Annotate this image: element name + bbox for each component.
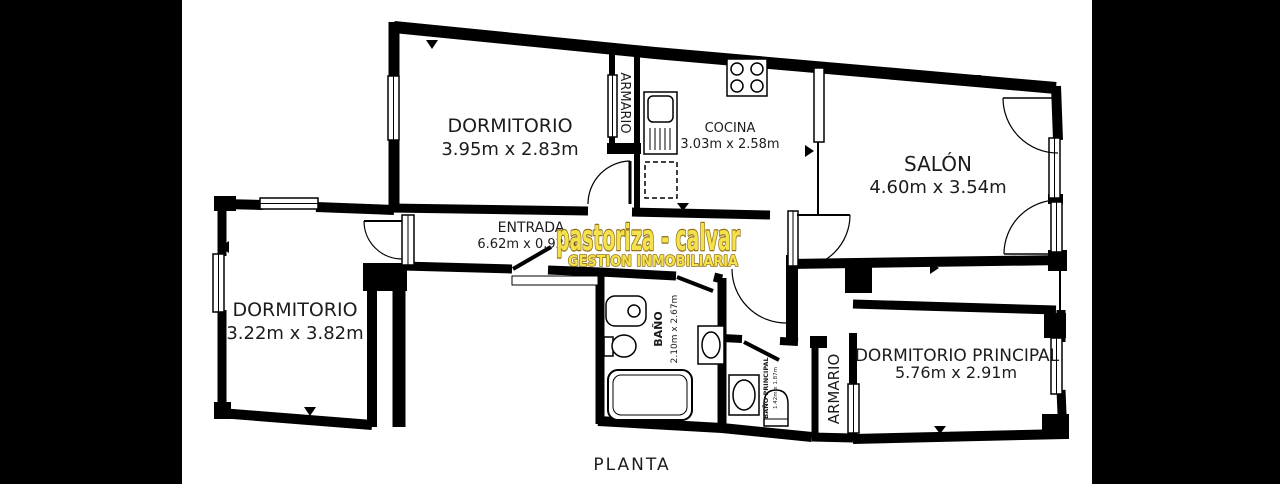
watermark: pastoriza - calvar GESTION INMOBILIARIA <box>556 218 740 270</box>
label-armario-cocina: ARMARIO <box>617 72 632 133</box>
doorframe-corridor-east <box>788 211 798 266</box>
bidet-icon <box>698 326 724 364</box>
label-cocina-dims: 3.03m x 2.58m <box>680 137 779 152</box>
label-cocina-name: COCINA <box>705 121 756 136</box>
label-banio-dims: 2.10m x 2.67m <box>670 295 680 364</box>
label-dormitorio1-name: DORMITORIO <box>447 115 572 137</box>
window-bedroom2-top <box>260 198 318 209</box>
label-dormitorio2-name: DORMITORIO <box>232 299 357 321</box>
bathroom-sink-icon <box>606 296 646 326</box>
left-letterbox-bar <box>0 0 182 484</box>
toilet-icon <box>604 335 636 357</box>
doorframe-master-closet <box>848 384 859 433</box>
window-salon-lower <box>1051 202 1062 252</box>
label-banio-name: BAÑO <box>652 311 665 346</box>
label-salon-dims: 4.60m x 3.54m <box>869 177 1006 198</box>
label-entrada-name: ENTRADA <box>498 220 565 236</box>
label-banio-principal-name: BAÑO PRINCIPAL <box>761 357 770 418</box>
kitchen-sink-icon <box>644 92 677 154</box>
entrance-threshold <box>512 276 598 285</box>
plan-caption: PLANTA <box>593 455 670 475</box>
window-bedroom2-left <box>213 254 224 312</box>
master-sink-icon <box>729 375 759 415</box>
label-dormitorio-principal-dims: 5.76m x 2.91m <box>895 363 1017 382</box>
right-letterbox-bar <box>1092 0 1280 484</box>
label-salon-name: SALÓN <box>904 152 972 176</box>
watermark-line2: GESTION INMOBILIARIA <box>568 252 738 270</box>
label-armario-principal: ARMARIO <box>825 354 843 425</box>
floor-plan-drawing: DORMITORIO 3.95m x 2.83m COCINA 3.03m x … <box>0 0 1280 484</box>
bathtub-icon <box>608 370 692 420</box>
column-kitchen-salon <box>814 68 824 142</box>
doorframe-corridor-west <box>402 215 414 265</box>
stove-icon <box>727 59 767 96</box>
label-dormitorio2-dims: 3.22m x 3.82m <box>226 323 363 344</box>
floor-plan-page: DORMITORIO 3.95m x 2.83m COCINA 3.03m x … <box>0 0 1280 484</box>
closet-door-upper-armario <box>608 75 617 137</box>
window-salon-upper <box>1049 138 1060 198</box>
label-dormitorio1-dims: 3.95m x 2.83m <box>441 139 578 160</box>
fridge-icon <box>645 162 677 198</box>
window-bedroom1-left <box>388 76 399 140</box>
label-banio-principal-dims: 1.42m x 1.87m <box>773 367 779 409</box>
